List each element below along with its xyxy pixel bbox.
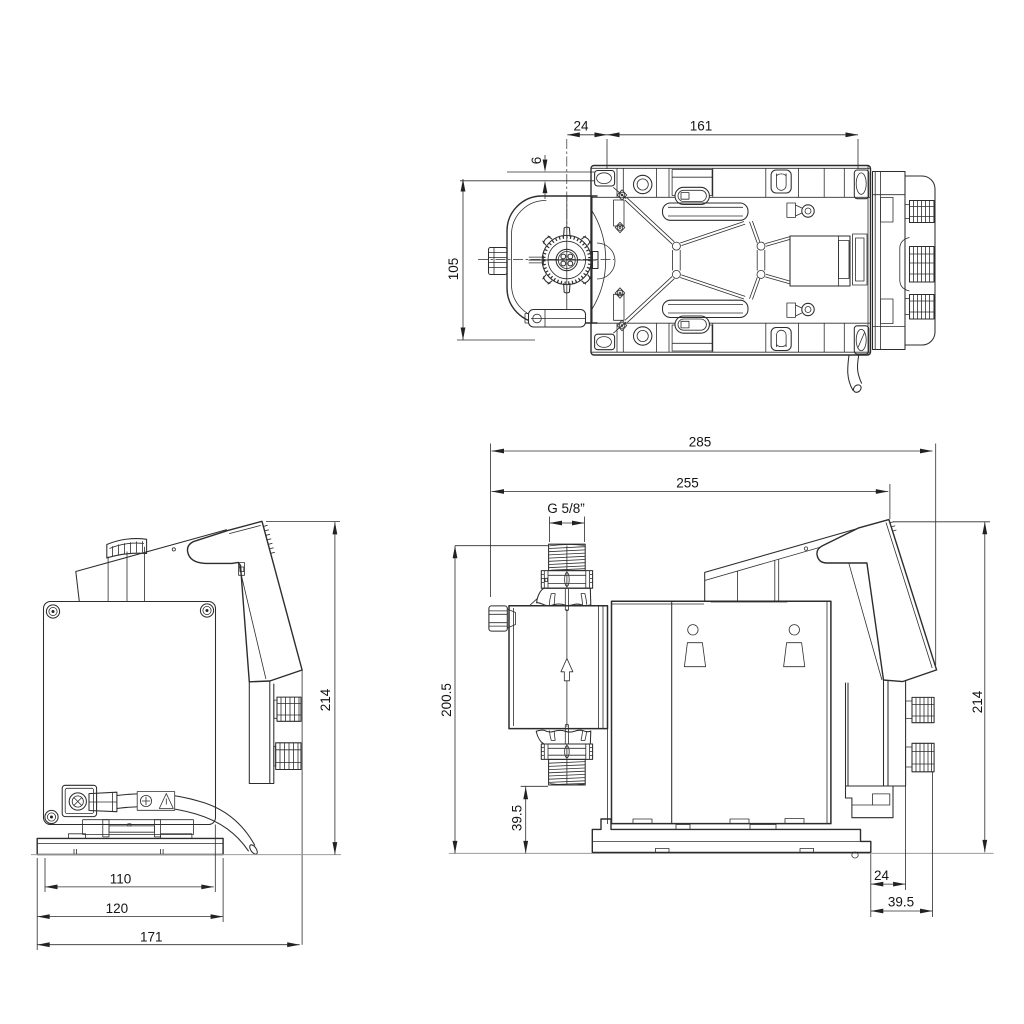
svg-text:120: 120: [106, 901, 129, 916]
svg-text:200.5: 200.5: [439, 683, 454, 717]
svg-text:24: 24: [874, 868, 890, 883]
svg-text:39.5: 39.5: [888, 895, 914, 910]
svg-text:105: 105: [446, 258, 461, 281]
svg-text:6: 6: [529, 157, 544, 165]
svg-text:39.5: 39.5: [510, 805, 525, 831]
svg-text:24: 24: [573, 119, 589, 134]
svg-text:171: 171: [140, 929, 163, 944]
svg-text:110: 110: [110, 871, 132, 886]
svg-text:214: 214: [318, 688, 333, 711]
svg-text:214: 214: [970, 690, 985, 713]
svg-text:G 5/8”: G 5/8”: [547, 501, 585, 516]
svg-text:161: 161: [690, 119, 713, 134]
svg-text:255: 255: [676, 476, 699, 491]
svg-text:285: 285: [689, 435, 712, 450]
